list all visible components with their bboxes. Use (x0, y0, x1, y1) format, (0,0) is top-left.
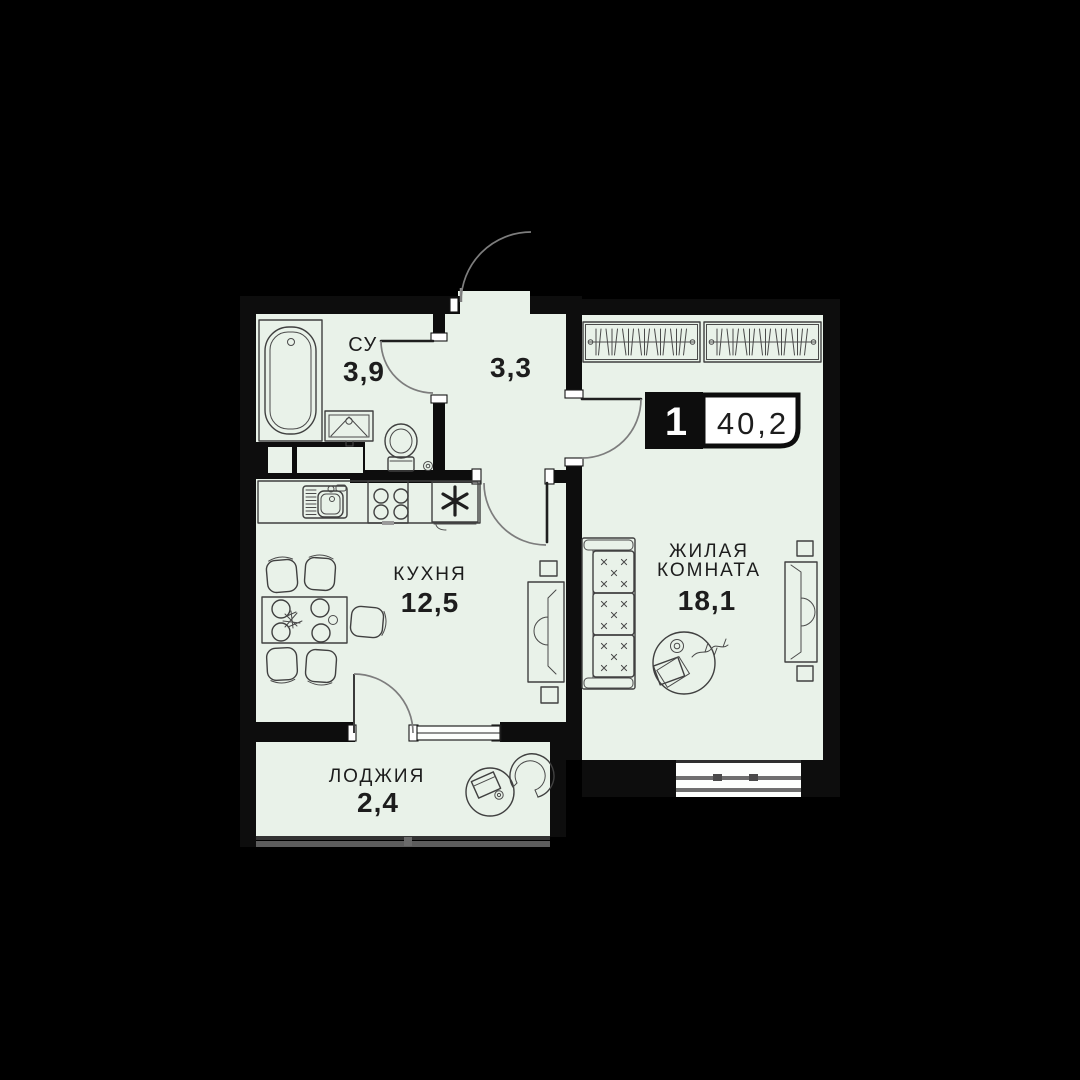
badge-rooms-count: 1 (665, 400, 687, 444)
floor-loggia (256, 742, 550, 837)
room-label-living-line2: КОМНАТА (657, 560, 761, 581)
floorplan-screen: 1 40,2 СУ 3,9 3,3 КУХНЯ 12,5 ЖИЛАЯ КОМНА… (0, 0, 1080, 1080)
floor-living-room (582, 314, 823, 760)
living-room-window (676, 760, 801, 797)
room-label-kitchen: КУХНЯ (393, 564, 466, 585)
badge-total-area: 40,2 (717, 406, 789, 441)
floor-living-door-opening (566, 397, 582, 459)
room-label-bathroom: СУ (348, 334, 377, 356)
floor-entry-opening (458, 291, 530, 314)
room-area-kitchen: 12,5 (401, 587, 460, 618)
floorplan-svg: 1 40,2 СУ 3,9 3,3 КУХНЯ 12,5 ЖИЛАЯ КОМНА… (0, 0, 1080, 1080)
vent-shafts (268, 447, 363, 473)
room-area-loggia: 2,4 (357, 787, 399, 818)
loggia-glazing (256, 836, 550, 847)
room-label-loggia: ЛОДЖИЯ (329, 766, 426, 787)
room-area-hallway: 3,3 (490, 352, 532, 383)
room-area-bathroom: 3,9 (343, 356, 385, 387)
vent-shaft-small (268, 447, 292, 473)
room-label-living-line1: ЖИЛАЯ (669, 541, 749, 562)
kitchen-loggia-window (417, 726, 500, 740)
vent-shaft-large (297, 447, 363, 473)
area-badge: 1 40,2 (645, 392, 798, 449)
room-area-living: 18,1 (678, 585, 737, 616)
